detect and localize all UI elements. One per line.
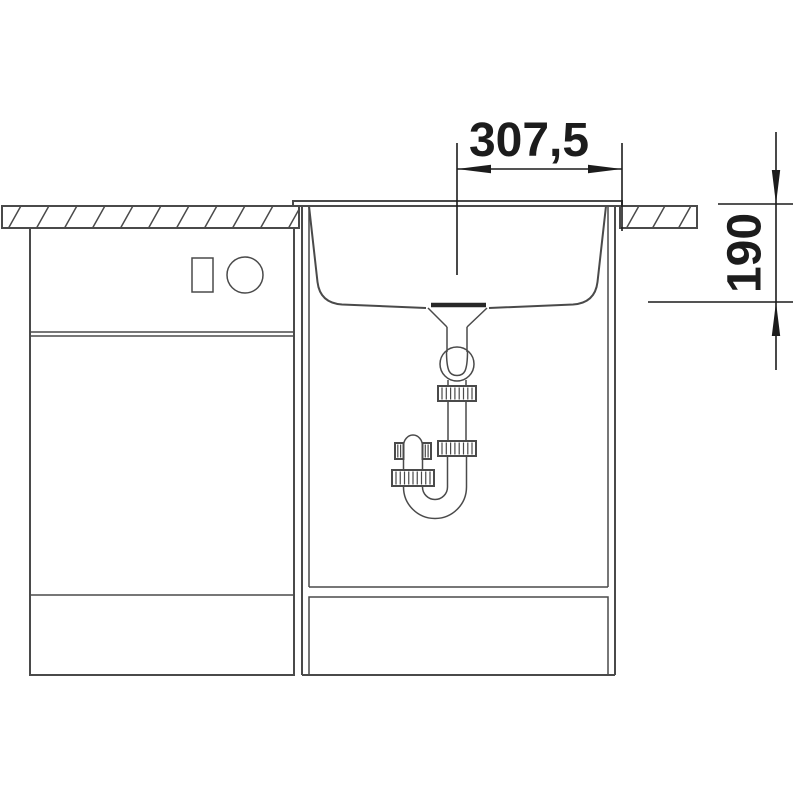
pipe-segment-2	[448, 401, 466, 441]
sink-basin-right-wall	[489, 206, 606, 308]
u-bend-outer	[404, 487, 467, 519]
dimension-width-label: 307,5	[469, 114, 589, 167]
siphon	[392, 327, 476, 519]
riser-nut-right-flank	[423, 443, 432, 459]
sink-basin-left-wall	[309, 206, 426, 308]
countertop	[2, 204, 697, 229]
ball-joint-socket	[447, 351, 468, 376]
trap-riser-bend	[404, 435, 423, 446]
sink-cabinet-bottom-panel	[309, 597, 608, 675]
left-cabinet-panel-lines	[30, 332, 294, 595]
countertop-left-section	[2, 204, 302, 229]
dimension-depth-label: 190	[719, 213, 772, 293]
compression-nut-middle	[438, 441, 476, 456]
dimension-basin-depth: 190	[648, 132, 793, 370]
appliance-knob	[227, 257, 263, 293]
left-cabinet	[30, 228, 294, 675]
appliance-display	[192, 258, 213, 292]
u-bend-inner	[423, 487, 448, 500]
countertop-right-section	[620, 204, 697, 229]
drain-funnel	[428, 308, 487, 327]
compression-nut-upper	[438, 386, 476, 401]
dimension-basin-width: 307,5	[457, 114, 622, 275]
sink-installation-drawing: 307,5 190	[0, 0, 800, 800]
technical-drawing-page: 307,5 190	[0, 0, 800, 800]
pipe-segment-3	[448, 456, 467, 487]
riser-nut-left-flank	[395, 443, 404, 459]
arrow-down-icon	[772, 170, 780, 204]
arrow-up-icon	[772, 302, 780, 336]
left-cabinet-outline	[30, 228, 294, 675]
arrow-right-icon	[588, 165, 622, 173]
